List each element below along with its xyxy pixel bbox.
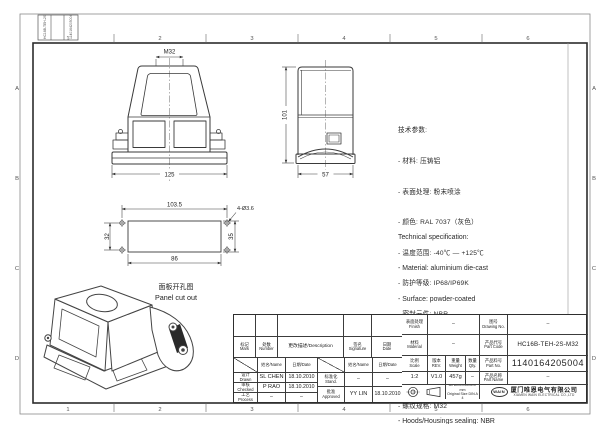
zone-letter: A [592,86,596,92]
label-en: Checked [237,388,253,392]
material-value: – [428,335,480,356]
part-code-value: HC16B-TEH-2S-M32 [508,335,588,356]
label-en: Drawn [240,378,252,382]
rev-empty-cell [372,315,402,337]
rev-label: 版本 REV. [428,356,446,372]
latch-pin-right [210,130,225,150]
holes-leader [229,213,237,222]
drawing-sheet: 1 2 3 4 5 6 1 2 3 4 5 6 A B C D A B C D [0,0,600,424]
mounting-holes [118,219,231,254]
hood-inner-window [141,74,197,116]
zone-number: 4 [342,407,346,413]
corner-part-no: 1140164205004 [69,15,73,39]
approved-name: YY LIN [345,387,373,402]
front-view [112,57,227,181]
spec-en-line: - Surface: powder-coated [398,295,511,305]
drawing-no-label: 图号 Drawing No. [480,315,508,335]
front-cutout-right [174,121,206,148]
rev-value: V1.0 [428,372,446,385]
stand-name: – [345,373,373,387]
company-names: 厦门唯恩电气有限公司 XIAMEN WAIN ELECTRICAL CO.,LT… [511,387,578,398]
spec-en-line: - Material: aluminium die-cast [398,264,511,274]
zone-letter: A [15,86,19,92]
name-subheader: 姓名/Name [345,358,373,373]
label-en: Signature [349,347,367,351]
title-block-revision-section: 标记 Mark 处数 Number 更改描述/Description 签名 Si… [234,315,402,402]
company-cell: WAIN 厦门唯恩电气有限公司 XIAMEN WAIN ELECTRICAL C… [480,385,588,399]
label-en: Process [238,398,253,402]
label-en: Finish [409,325,420,329]
label-en: Material [407,345,422,349]
process-name: – [258,393,286,402]
side-view [281,60,355,179]
dim-text-101: 101 [283,109,289,120]
title-block-properties-section: 表面处理 Finish – 材料 Material – 比例 Scale 版本 … [402,315,480,402]
rev-empty-cell [278,315,344,337]
title-block: 标记 Mark 处数 Number 更改描述/Description 签名 Si… [233,314,587,403]
label-en: Part Name [484,378,504,382]
process-date: – [286,393,318,402]
latch-pin-left [113,130,128,150]
checked-date: 18.10.2010 [286,383,318,393]
label-en: Mark [240,347,249,351]
finish-label: 表面处理 Finish [402,315,428,335]
rev-empty-cell [344,315,372,337]
part-name-label: 产品名称 Part Name [480,372,508,385]
qty-value: – [466,372,480,385]
rev-mark-header: 标记 Mark [234,337,256,358]
drawn-date: 18.10.2010 [286,373,318,383]
drawn-name: SL CHEN [258,373,286,383]
scale-label: 比例 Scale [402,356,428,372]
title-block-id-section: 图号 Drawing No. – 产品代号 Part Code HC16B-TE… [480,315,588,402]
diag-cell [318,358,345,373]
wain-logo: WAIN [491,387,508,397]
rev-signature-header: 签名 Signature [344,337,372,358]
date-subheader: 日期/Date [373,358,402,373]
dim-text-57: 57 [322,173,329,179]
zone-letter: D [15,356,19,362]
label-en: Approved [322,395,340,399]
cutout-caption-en: Panel cut out [155,293,197,302]
label-en: Drawing No. [482,325,505,329]
spec-zh-line: - 表面处理: 粉末喷涂 [398,188,484,198]
dims-note-line2: Original Size DIN A 4 [446,392,479,399]
checked-label: 审核 Checked [234,383,258,393]
spec-en-line: - Hoods/Housings sealing: NBR [398,417,511,424]
stand-date: – [373,373,402,387]
zone-number: 6 [526,407,529,413]
corner-filing-block: HC16B-TEH-2S-M32 1140164205004 [38,7,78,40]
spec-zh-title: 技术参数: [398,126,484,136]
checked-name: P RAO [258,383,286,393]
part-no-label: 产品料号 Part No. [480,356,508,372]
weight-value: 457g [446,372,466,385]
label-en: Qty. [469,364,476,368]
zone-number: 3 [250,407,253,413]
rev-number-header: 处数 Number [256,337,278,358]
zone-number: 2 [158,407,161,413]
rev-empty-cell [234,315,256,337]
dim-text-35: 35 [229,233,235,240]
label-en: Date [383,347,392,351]
zone-number: 6 [526,36,529,42]
hood-outline [128,66,210,152]
company-name-en: XIAMEN WAIN ELECTRICAL CO.,LTD [514,394,575,398]
label-en: Number [259,347,274,351]
diag-cell [234,358,258,373]
name-subheader: 姓名/Name [258,358,286,373]
zone-letter: C [592,266,596,272]
zone-number: 3 [250,36,253,42]
rev-empty-cell [256,315,278,337]
dim-text-86: 86 [171,257,178,263]
rev-date-header: 日期 Date [372,337,402,358]
projection-symbol [402,385,446,399]
approved-label: 批准 Approved [318,387,345,402]
dims-note-line1: All Dimensions in mm [446,385,479,392]
part-name-value: – [508,372,588,385]
cutout-rect [128,221,221,252]
zone-number: 2 [158,36,161,42]
spec-zh-line: - 材料: 压铸铝 [398,157,484,167]
rev-description-header: 更改描述/Description [278,337,344,358]
holes-note-text: 4-Ø3.6 [237,206,254,212]
label-en: Part Code [484,345,502,349]
dim-text-125: 125 [164,173,175,179]
zone-letter: B [15,176,19,182]
dims-note: All Dimensions in mm Original Size DIN A… [446,385,480,399]
label-en: REV. [432,364,441,368]
weight-label: 重量 Weight [446,356,466,372]
drawing-no-value: – [508,315,588,335]
dimension-texts: M32 125 101 57 103.5 32 86 35 4-Ø3.6 面板开… [105,50,329,303]
spec-en-title: Technical specification: [398,233,511,243]
stand-label: 标准化 Stand. [318,373,345,387]
front-cutout-left [133,121,165,148]
label-en: Stand. [325,380,337,384]
part-code-label: 产品代号 Part Code [480,335,508,356]
date-subheader: 日期/Date [286,358,318,373]
label-en: Part No. [486,364,501,368]
label-en: Weight [449,364,462,368]
zone-number: 4 [342,36,346,42]
first-angle-projection-icon [404,386,444,398]
cutout-caption-zh: 面板开孔图 [159,282,194,291]
material-label: 材料 Material [402,335,428,356]
dim-text-m32: M32 [164,50,176,56]
label-en: Scale [409,364,419,368]
qty-label: 数量 Qty. [466,356,480,372]
drawn-label: 设计 Drawn [234,373,258,383]
dim-text-103-5: 103.5 [167,203,183,209]
approved-date: 18.10.2010 [373,387,402,402]
zone-letter: B [592,176,596,182]
zone-letter: C [15,266,19,272]
dim-text-32: 32 [105,233,111,240]
corner-part-code: HC16B-TEH-2S-M32 [43,7,47,39]
part-no-value: 1140164205004 [508,356,588,372]
zone-letter: D [592,356,596,362]
scale-value: 1:2 [402,372,428,385]
zone-number: 1 [66,407,69,413]
zone-number: 5 [434,36,437,42]
process-label: 工艺 Process [234,393,258,402]
finish-value: – [428,315,480,335]
